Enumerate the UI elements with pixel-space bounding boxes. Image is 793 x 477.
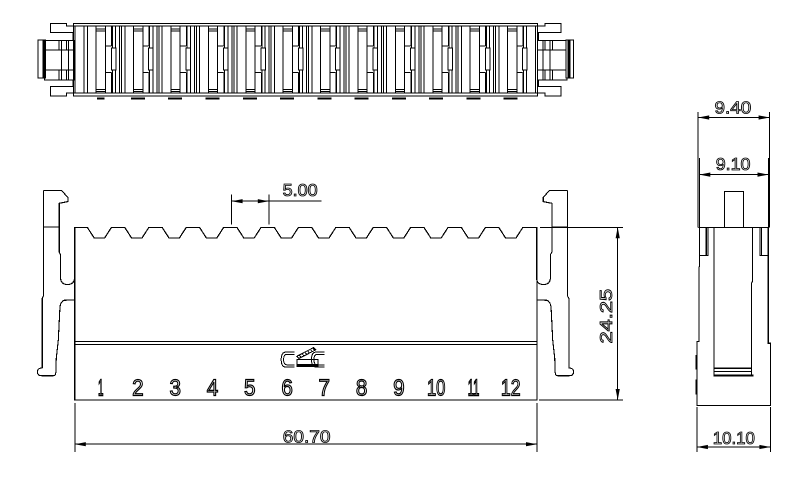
svg-text:4: 4	[207, 374, 219, 400]
svg-text:1: 1	[98, 374, 104, 400]
svg-text:7: 7	[319, 374, 331, 400]
svg-text:9: 9	[393, 374, 405, 400]
svg-text:6: 6	[281, 374, 293, 400]
svg-text:5.00: 5.00	[283, 180, 318, 200]
svg-text:3: 3	[169, 374, 181, 400]
svg-text:9.40: 9.40	[715, 97, 752, 117]
svg-text:12: 12	[501, 374, 521, 400]
svg-text:2: 2	[132, 374, 144, 400]
svg-text:11: 11	[468, 374, 480, 400]
svg-text:9.10: 9.10	[716, 154, 751, 174]
svg-text:24.25: 24.25	[596, 289, 616, 344]
svg-text:8: 8	[356, 374, 368, 400]
svg-text:10: 10	[427, 374, 446, 400]
svg-text:60.70: 60.70	[283, 426, 331, 446]
svg-text:10.10: 10.10	[713, 428, 755, 448]
svg-text:5: 5	[244, 374, 256, 400]
